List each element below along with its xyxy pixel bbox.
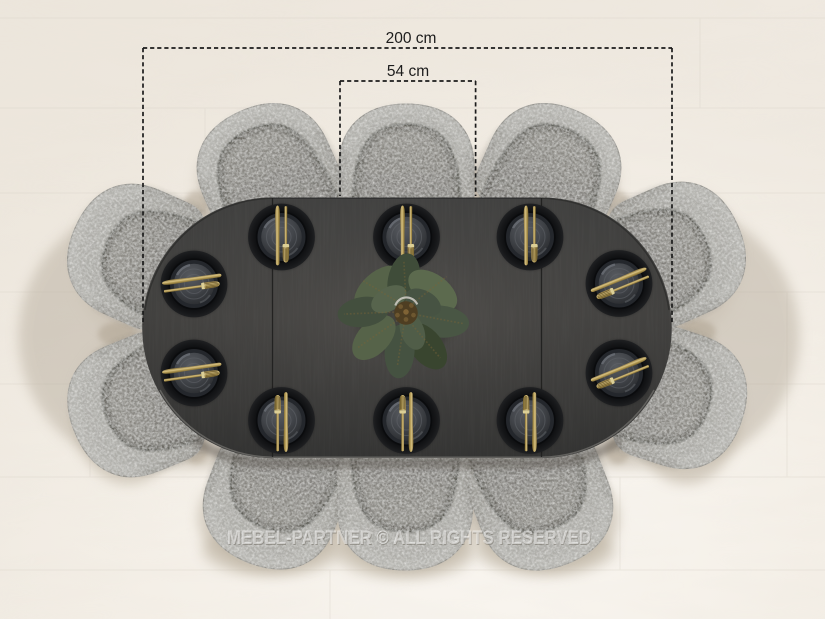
svg-text:MEBEL-PARTNER © ALL RIGHTS RE: MEBEL-PARTNER © ALL RIGHTS RESERVED	[227, 527, 591, 549]
svg-text:54 cm: 54 cm	[387, 63, 429, 80]
svg-text:200 cm: 200 cm	[386, 30, 437, 47]
